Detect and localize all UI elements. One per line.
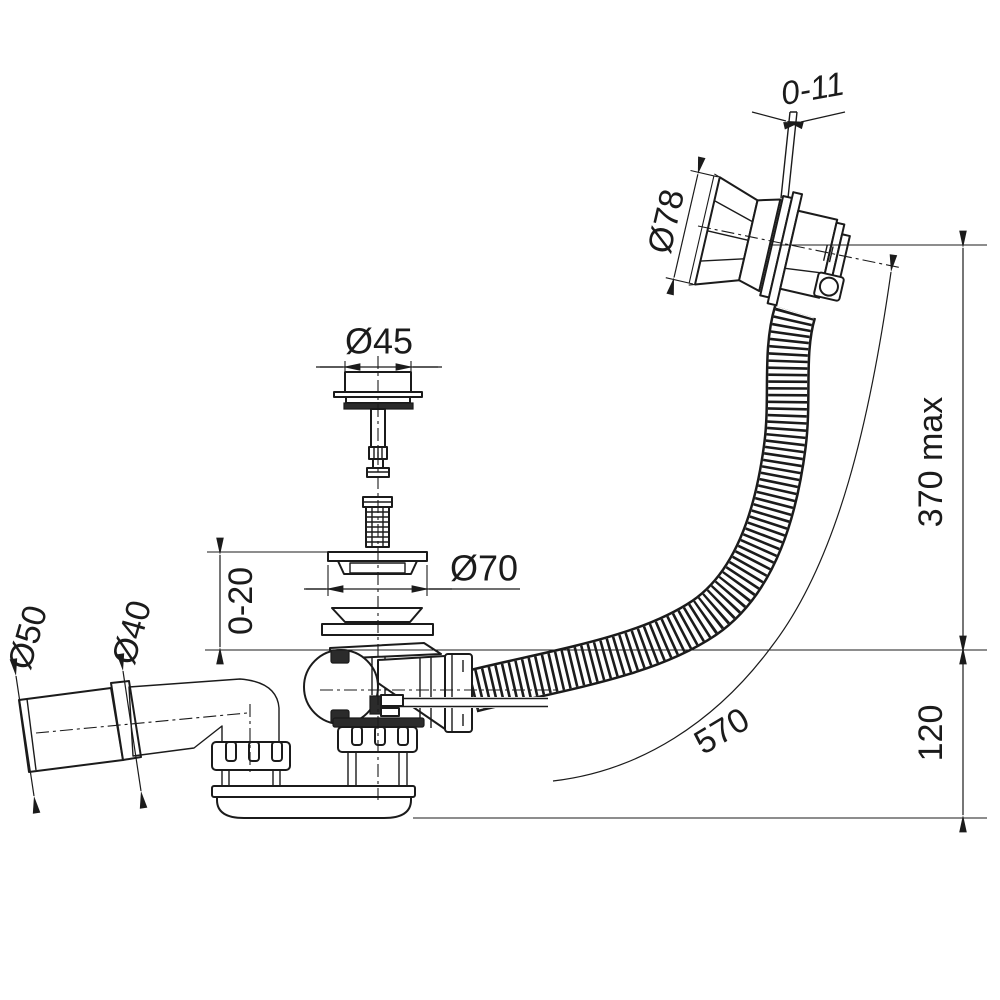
waste-tee-body xyxy=(304,643,472,732)
hose-nut xyxy=(445,654,472,732)
dimension-hose-length-arc xyxy=(553,272,891,781)
ball-screw-top xyxy=(331,650,349,663)
dimension-flange-height-adjust: 0-20 xyxy=(220,555,260,647)
dim-label-flange-height-adjust: 0-20 xyxy=(222,567,260,635)
overflow-head: Ø78 xyxy=(635,162,860,319)
dimension-cable-adjust: 0-11 xyxy=(752,65,847,122)
dim-label-outlet-sleeve-diameter: Ø50 xyxy=(1,601,55,673)
technical-drawing-page: Ø78 0-11 xyxy=(0,0,1000,1000)
dimension-hose-length: 570 xyxy=(688,700,756,762)
dim-label-overflow-cap-diameter: Ø78 xyxy=(641,186,692,257)
dim-label-overflow-height-max: 370 max xyxy=(912,397,950,527)
dimension-plug-diameter: Ø45 xyxy=(316,321,442,367)
overflow-cable-rod xyxy=(781,112,797,198)
trap-nut-left xyxy=(212,742,290,786)
dim-label-hose-length: 570 xyxy=(688,700,756,762)
dimension-overflow-height-max: 370 max xyxy=(912,248,963,647)
dim-label-trap-height: 120 xyxy=(912,705,950,762)
corrugated-hose xyxy=(472,312,795,691)
dim-label-outlet-pipe-diameter: Ø40 xyxy=(105,596,159,668)
dim-label-waste-flange-diameter: Ø70 xyxy=(450,548,518,589)
trap-cup xyxy=(212,786,415,818)
cable-anchor xyxy=(370,696,381,714)
dim-label-cable-adjust: 0-11 xyxy=(778,65,847,112)
reference-lines xyxy=(205,245,987,818)
dimension-trap-height: 120 xyxy=(912,653,963,815)
bath-waste-overflow-drawing: Ø78 0-11 xyxy=(0,0,1000,1000)
dim-label-plug-diameter: Ø45 xyxy=(345,321,413,362)
bottle-trap xyxy=(212,727,417,818)
